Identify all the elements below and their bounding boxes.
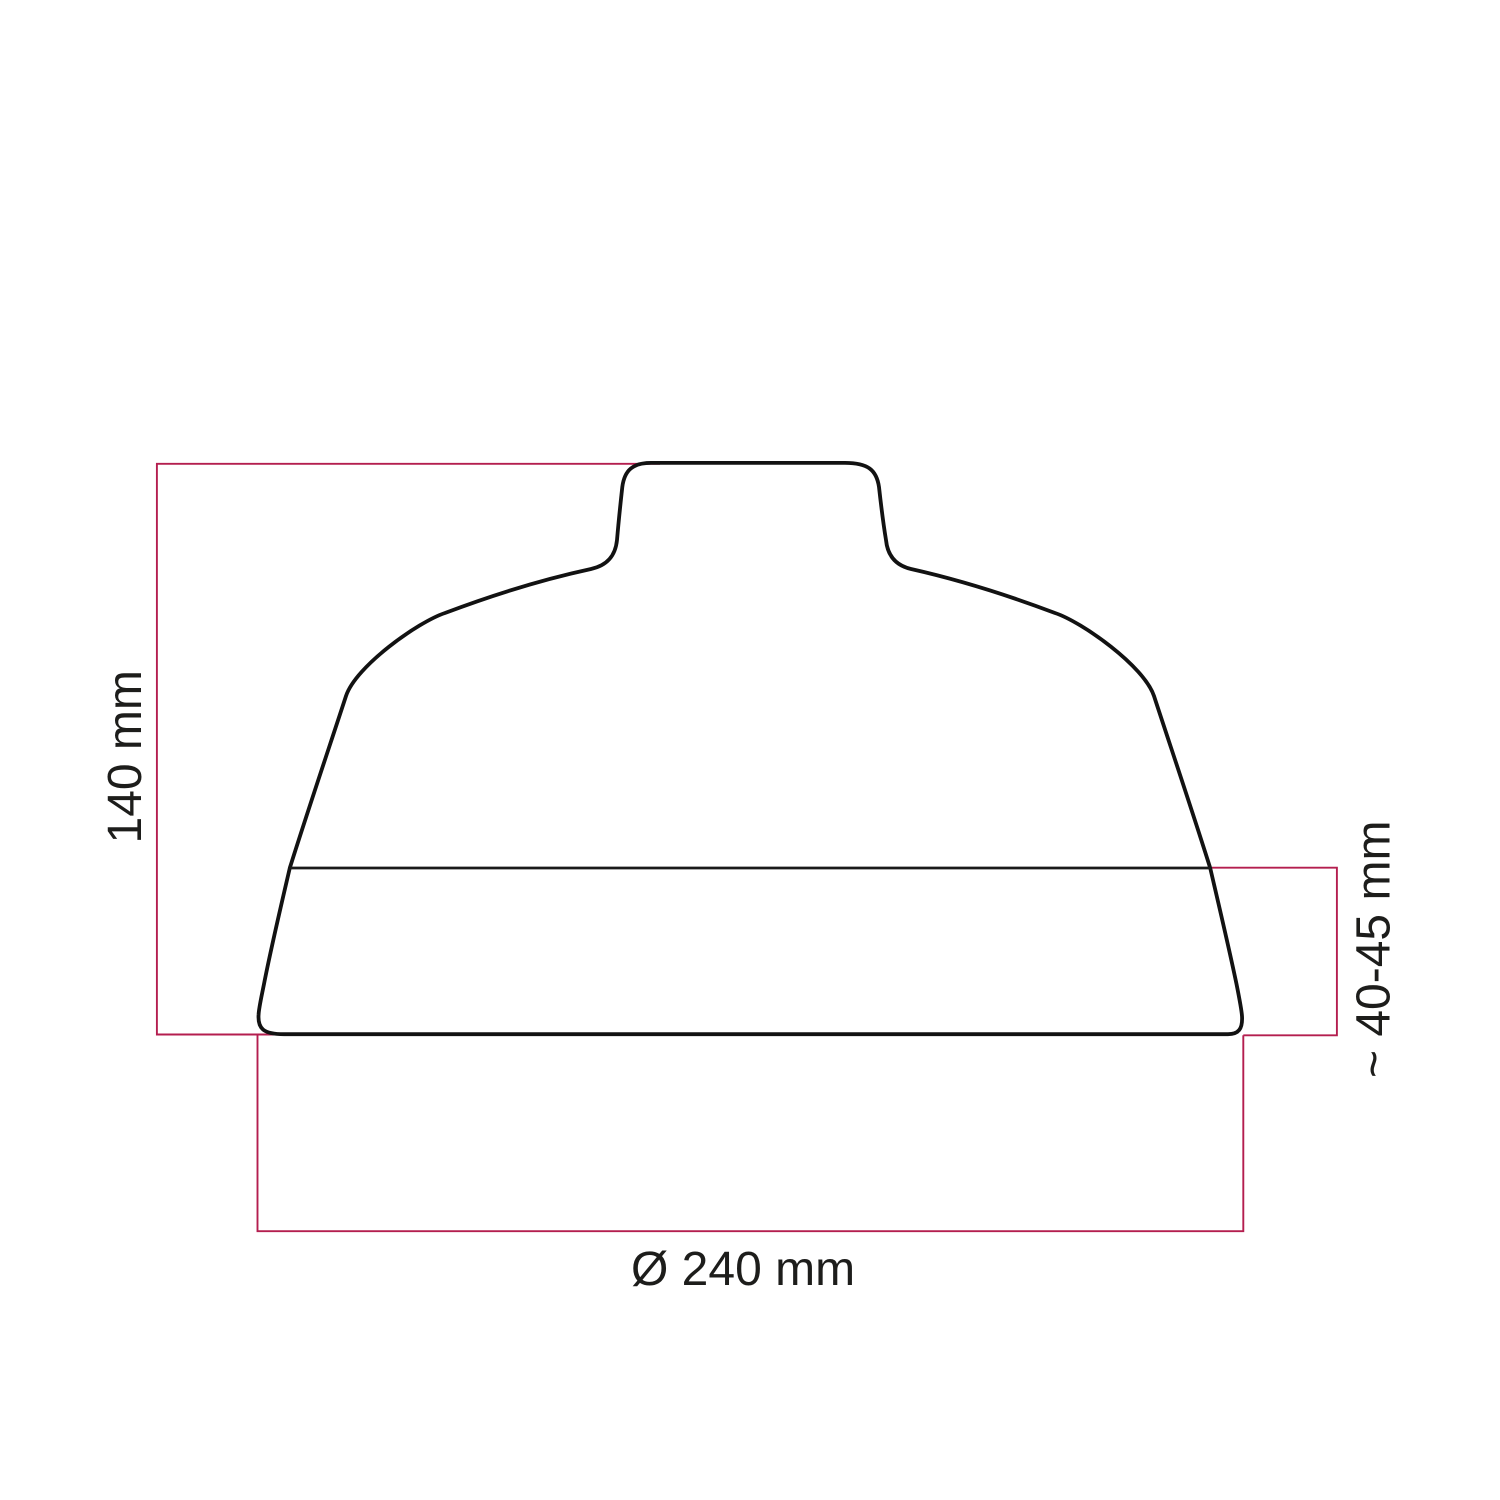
svg-text:Ø 240 mm: Ø 240 mm <box>631 1243 855 1296</box>
svg-text:140 mm: 140 mm <box>99 670 152 843</box>
svg-text:~ 40-45 mm: ~ 40-45 mm <box>1348 821 1401 1078</box>
